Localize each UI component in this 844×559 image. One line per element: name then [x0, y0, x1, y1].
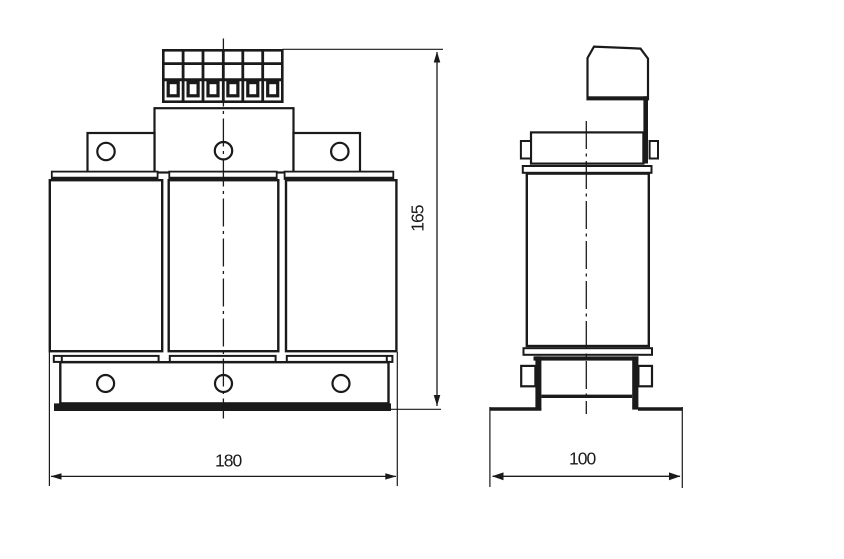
svg-text:165: 165: [408, 205, 428, 231]
svg-text:180: 180: [215, 451, 242, 471]
svg-text:100: 100: [569, 449, 596, 469]
